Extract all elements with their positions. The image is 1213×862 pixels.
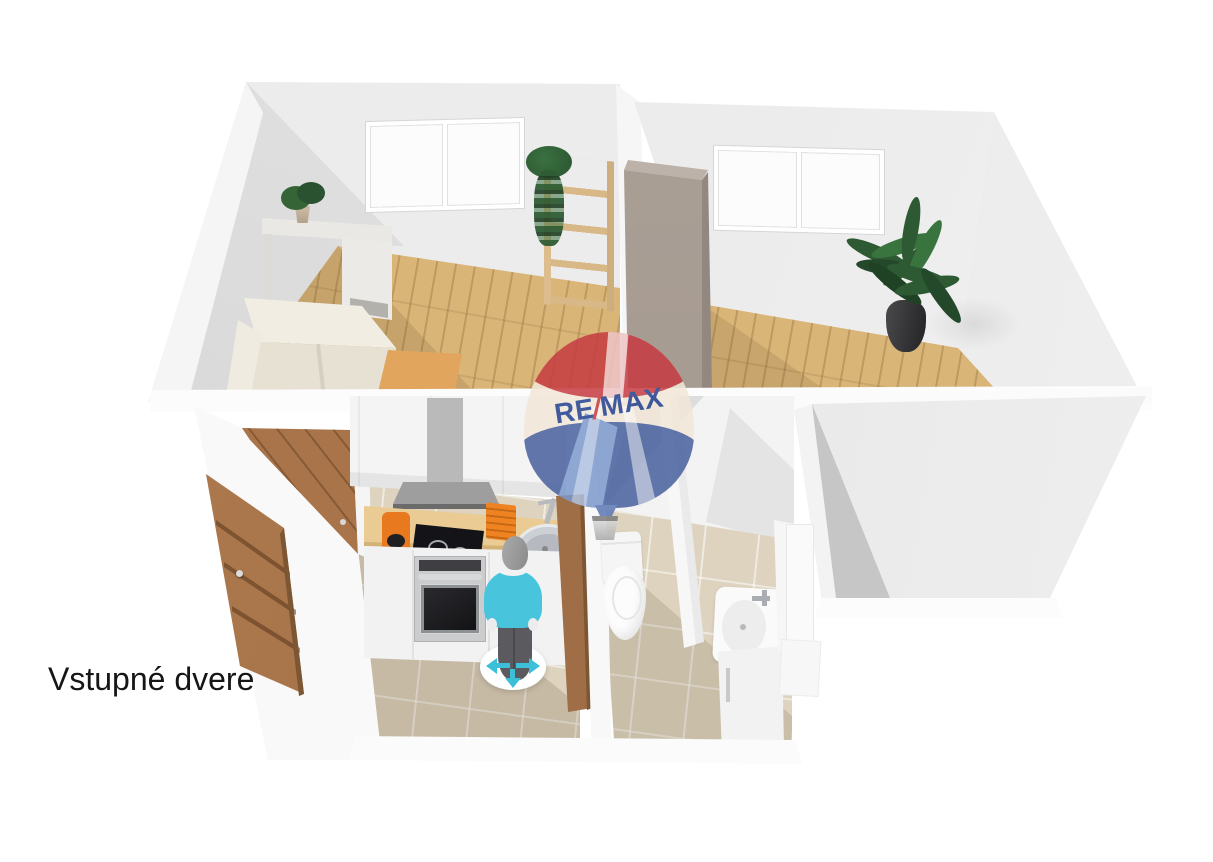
shelf-unit bbox=[779, 639, 822, 697]
hanging-plant bbox=[524, 146, 576, 250]
vanity-faucet bbox=[762, 590, 767, 606]
window-pane bbox=[370, 124, 443, 208]
door-handle bbox=[340, 519, 346, 525]
move-down-arrow-icon[interactable] bbox=[505, 678, 521, 688]
balloon-basket bbox=[590, 516, 620, 540]
entrance-door-label: Vstupné dvere bbox=[48, 661, 254, 698]
console-plant bbox=[281, 182, 325, 212]
oven-control-panel bbox=[419, 560, 481, 571]
coffee-pot bbox=[387, 534, 405, 548]
move-right-arrow-icon[interactable] bbox=[516, 663, 529, 668]
human-figure-legs bbox=[498, 620, 532, 680]
living-room-window bbox=[366, 118, 524, 212]
floor-plant bbox=[842, 216, 992, 356]
logo-slash: / bbox=[591, 388, 602, 427]
oven-window bbox=[421, 585, 479, 633]
move-left-arrow-icon[interactable] bbox=[497, 663, 510, 668]
balloon-canopy: RE/MAX bbox=[524, 332, 694, 508]
vanity-faucet bbox=[752, 596, 770, 601]
window-pane bbox=[718, 150, 797, 228]
vanity-drain bbox=[740, 624, 746, 630]
floorplan-3d-render: RE/MAX Vstupné dvere bbox=[0, 0, 1213, 862]
plant-leaf bbox=[916, 264, 966, 327]
move-left-arrow-icon[interactable] bbox=[486, 658, 497, 674]
remax-balloon-watermark: RE/MAX bbox=[520, 330, 700, 560]
plant-vines bbox=[534, 170, 564, 246]
window-pane bbox=[447, 122, 520, 206]
logo-re: RE bbox=[552, 393, 596, 430]
oven bbox=[414, 556, 486, 642]
human-figure-hand bbox=[528, 618, 538, 631]
door-handle bbox=[236, 570, 243, 577]
toilet-seat bbox=[612, 576, 642, 620]
move-down-arrow-icon[interactable] bbox=[510, 669, 515, 678]
human-figure-hand bbox=[487, 618, 497, 631]
plant-foliage bbox=[297, 182, 325, 204]
shelf-unit bbox=[786, 524, 814, 650]
oven-handle bbox=[418, 574, 482, 580]
move-right-arrow-icon[interactable] bbox=[529, 658, 540, 674]
